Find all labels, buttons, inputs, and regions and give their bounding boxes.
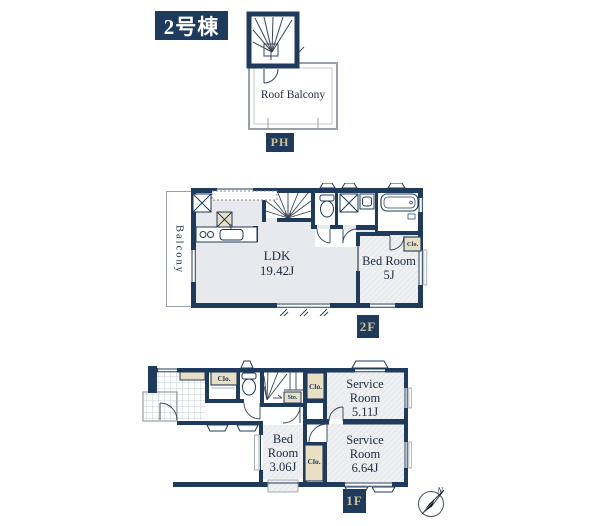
shutter-marks [280, 309, 328, 316]
window [404, 442, 411, 468]
storage-label: Sto. [284, 395, 301, 401]
closet-label-bedroom: Clo. [305, 458, 323, 466]
compass-north-label: N [436, 486, 444, 496]
room-label-bedroom-2f: Bed Room 5J [360, 254, 418, 282]
hood-icon [217, 212, 232, 227]
room-label-service-room-b: Service Room 6.64J [330, 433, 400, 475]
room-label-service-room-a: Service Room 5.11J [330, 377, 400, 419]
room-label-roof-balcony: Roof Balcony [253, 89, 333, 101]
window [404, 388, 411, 408]
toilet-icon [242, 373, 256, 395]
window [370, 303, 395, 308]
floor-badge-2f: 2F [357, 315, 379, 338]
floor-badge-1f: 1F [343, 489, 366, 513]
floorplan-canvas: Roof Balcony PH 2号棟 Balcony [0, 0, 600, 526]
window [418, 250, 427, 285]
washing-machine-icon [340, 194, 358, 212]
cupboard [212, 191, 277, 200]
room-label-bedroom-1f: Bed Room 3.06J [257, 432, 309, 474]
bay-window [268, 480, 298, 492]
floor-badge-ph: PH [266, 133, 294, 152]
compass-icon: N [414, 484, 452, 522]
vent-window [320, 183, 405, 188]
window [191, 250, 196, 282]
window [345, 482, 392, 487]
window [418, 198, 423, 212]
ph-floorplan [240, 8, 350, 158]
shoe-cabinet [180, 372, 205, 380]
building-title-badge: 2号棟 [155, 11, 228, 40]
toilet-icon [320, 195, 334, 217]
closet-label-2f: Clo. [404, 242, 421, 249]
ph-stair-room [249, 14, 304, 66]
window [277, 303, 330, 308]
window [355, 368, 385, 373]
closet-label-hall: Clo. [307, 383, 324, 391]
room-label-ldk: LDK 19.42J [244, 249, 310, 278]
refrigerator-icon [193, 194, 211, 212]
closet-label-entry: Clo. [211, 375, 237, 383]
washbasin-icon [360, 194, 374, 209]
window [158, 368, 177, 373]
